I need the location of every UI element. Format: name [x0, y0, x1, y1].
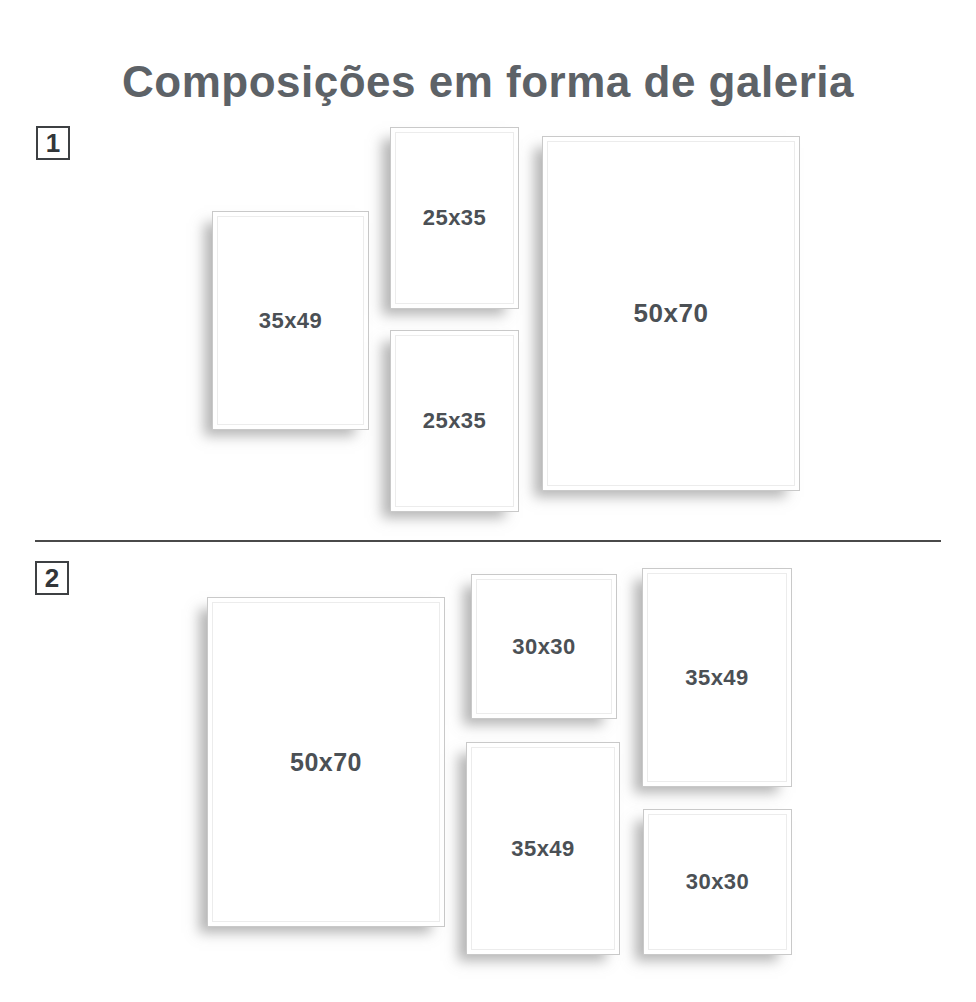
page-title: Composições em forma de galeria — [0, 57, 976, 107]
section-2-badge: 2 — [35, 561, 69, 595]
frame-30x30: 30x30 — [471, 574, 617, 719]
frame-size-label: 35x49 — [685, 665, 749, 691]
section-1-number: 1 — [46, 128, 60, 159]
frame-50x70: 50x70 — [542, 136, 800, 491]
frame-25x35: 25x35 — [390, 127, 519, 309]
frame-size-label: 50x70 — [290, 748, 362, 777]
section-divider — [35, 540, 941, 542]
frame-50x70: 50x70 — [207, 597, 445, 927]
frame-30x30: 30x30 — [643, 809, 792, 955]
section-1-badge: 1 — [36, 126, 70, 160]
gallery-compositions-diagram: Composições em forma de galeria 1 35x49 … — [0, 0, 976, 1002]
frame-size-label: 25x35 — [423, 205, 487, 231]
frame-size-label: 35x49 — [511, 836, 575, 862]
frame-size-label: 30x30 — [686, 869, 750, 895]
frame-size-label: 30x30 — [512, 634, 576, 660]
frame-size-label: 25x35 — [423, 408, 487, 434]
frame-size-label: 35x49 — [259, 308, 323, 334]
frame-35x49: 35x49 — [212, 211, 369, 430]
section-2-number: 2 — [45, 563, 59, 594]
frame-35x49: 35x49 — [642, 568, 792, 787]
frame-size-label: 50x70 — [634, 298, 709, 329]
frame-25x35: 25x35 — [390, 330, 519, 512]
frame-35x49: 35x49 — [466, 742, 620, 955]
